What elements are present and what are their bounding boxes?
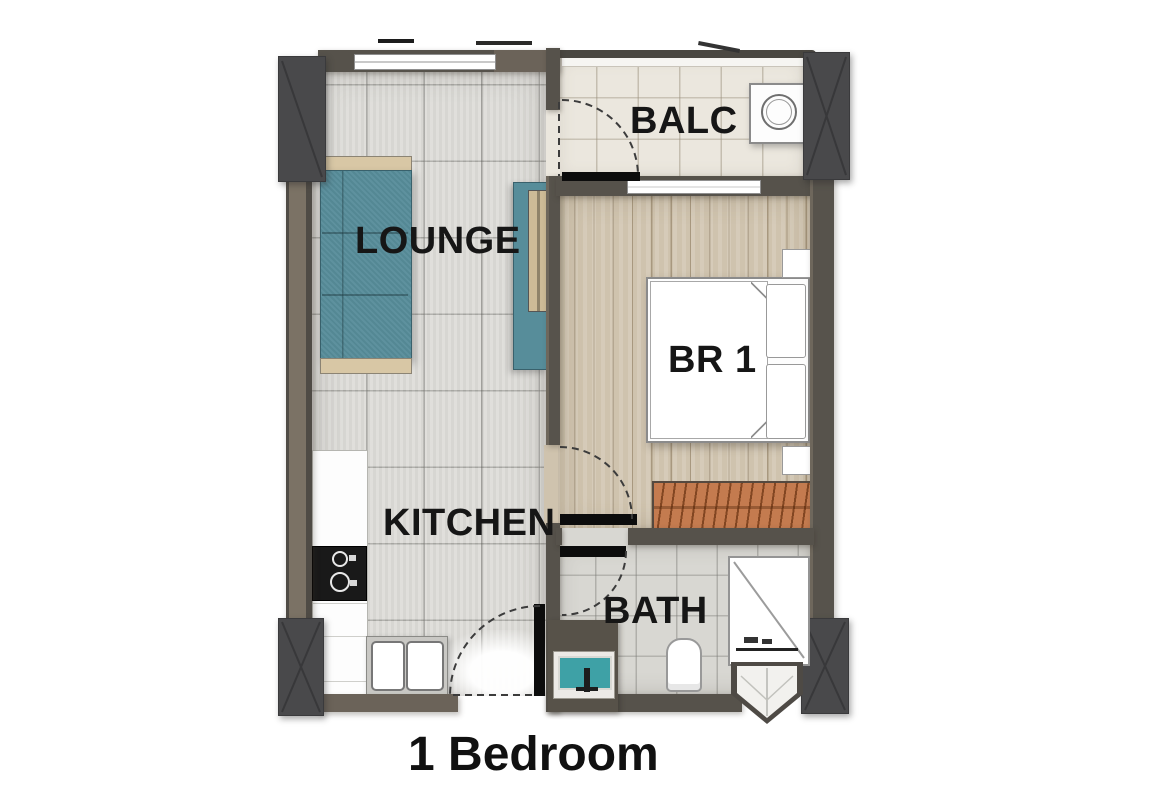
stove-knob (350, 580, 357, 586)
kitchen-label: KITCHEN (383, 504, 555, 542)
pillow (766, 364, 806, 439)
bay-window-lines-icon (737, 666, 797, 718)
bedroom-right-wall (810, 176, 834, 620)
sink-basin (371, 641, 405, 691)
wardrobe (652, 481, 814, 533)
shower-handle-icon (762, 639, 772, 644)
kitchen-bottom-wall (318, 694, 458, 712)
lounge-bedroom-divider-wall (546, 176, 560, 445)
bedroom-bath-wall (628, 528, 814, 545)
sink-basin (406, 641, 444, 691)
balcony-railing (558, 50, 816, 58)
shower-faucet-icon (736, 648, 798, 651)
bedroom-bath-wall-sliver (556, 528, 562, 545)
sofa-armrest-bottom (320, 358, 412, 374)
sofa-cushion-line (322, 294, 408, 296)
bay-window-inner (737, 666, 797, 718)
entrance-door-leaf (534, 604, 545, 696)
column-bottom-left (278, 618, 324, 716)
left-wall (286, 176, 312, 622)
stove-burner-icon (330, 572, 350, 592)
floor-plan: LOUNGE BALC BR 1 KITCHEN BATH 1 Bedroom (0, 0, 1170, 785)
shower-handle-icon (744, 637, 758, 643)
bath-door-leaf (560, 546, 626, 557)
column-brace-icon (279, 619, 323, 715)
bath-doorway-floor (558, 528, 628, 546)
balcony-doorway-floor (546, 108, 560, 178)
column-brace-icon (279, 57, 325, 181)
balcony-glass (562, 58, 804, 67)
bedroom-window (627, 180, 761, 194)
lounge-balcony-divider-wall (546, 48, 560, 110)
bath-label: BATH (603, 592, 708, 630)
slab-mark (378, 39, 414, 43)
stove-knob (349, 555, 356, 561)
lounge-label: LOUNGE (355, 222, 521, 260)
column-brace-icon (804, 53, 849, 179)
stove-burner-icon (332, 551, 348, 567)
sofa (320, 170, 412, 360)
vanity-faucet-icon (576, 687, 598, 691)
column-top-right (803, 52, 850, 180)
slab-mark (476, 41, 532, 45)
balcony-door-leaf (562, 172, 640, 181)
column-top-left (278, 56, 326, 182)
bedroom-label: BR 1 (668, 341, 757, 379)
washing-machine-drum-inner (766, 99, 792, 125)
bedroom-door-leaf (560, 514, 637, 525)
lounge-window (354, 54, 496, 70)
pillow (766, 284, 806, 358)
nightstand (782, 446, 812, 475)
bed-sheet-fold (751, 282, 767, 299)
bed-sheet-fold (751, 421, 767, 438)
nightstand (782, 249, 811, 278)
toilet (666, 638, 702, 692)
balcony-label: BALC (630, 102, 738, 140)
plan-title: 1 Bedroom (408, 731, 659, 779)
